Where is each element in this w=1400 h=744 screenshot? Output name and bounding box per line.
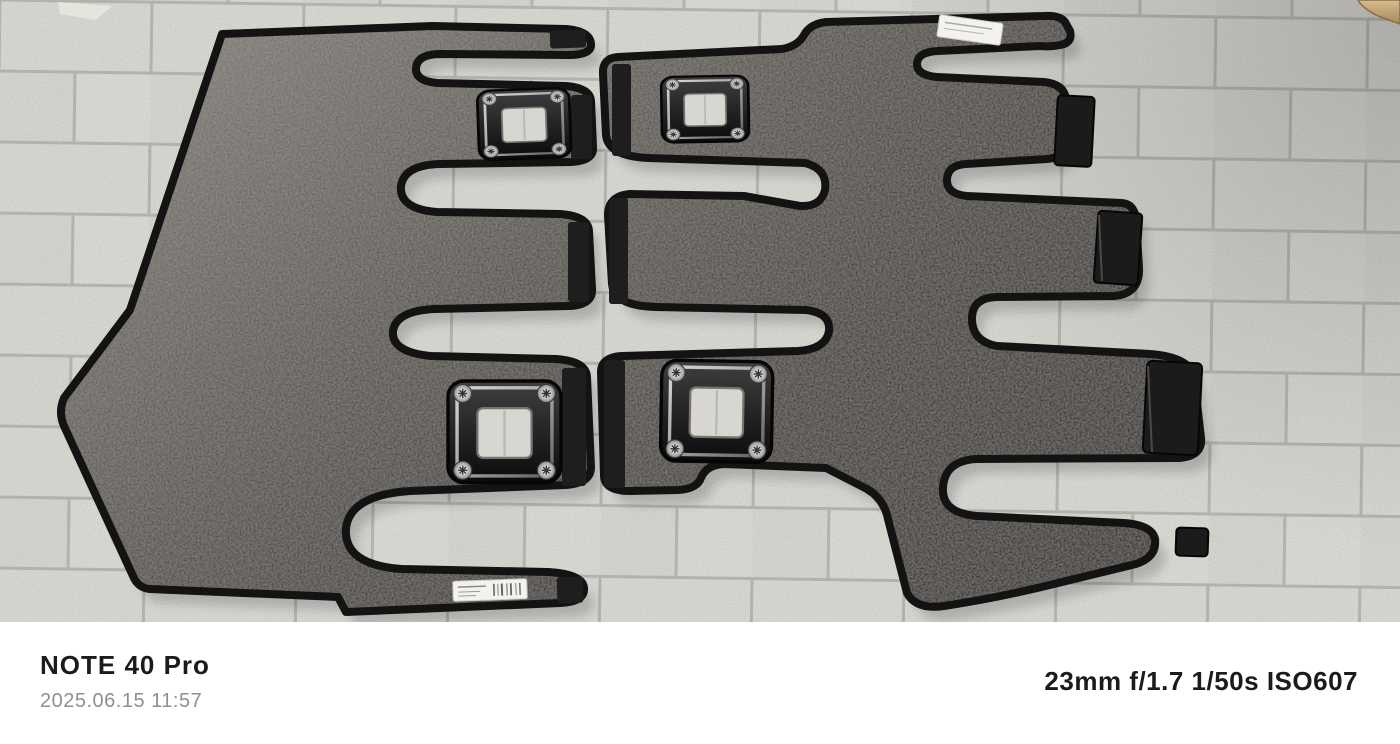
watermark-left: NOTE 40 Pro 2025.06.15 11:57 bbox=[40, 650, 210, 713]
photo-area bbox=[0, 0, 1400, 622]
grommet-4 bbox=[660, 360, 773, 463]
device-watermark: NOTE 40 Pro bbox=[40, 650, 210, 681]
exif-watermark: 23mm f/1.7 1/50s ISO607 bbox=[1044, 666, 1358, 697]
grommet-3 bbox=[448, 381, 561, 483]
grommet-1 bbox=[477, 88, 571, 160]
watermark-band: NOTE 40 Pro 2025.06.15 11:57 23mm f/1.7 … bbox=[0, 622, 1400, 744]
photo-scene bbox=[0, 0, 1400, 622]
timestamp-watermark: 2025.06.15 11:57 bbox=[40, 690, 210, 713]
grommet-2 bbox=[661, 75, 749, 142]
barcode-sticker bbox=[453, 579, 528, 602]
camera-photo-frame: NOTE 40 Pro 2025.06.15 11:57 23mm f/1.7 … bbox=[0, 0, 1400, 744]
barcode bbox=[494, 583, 520, 596]
